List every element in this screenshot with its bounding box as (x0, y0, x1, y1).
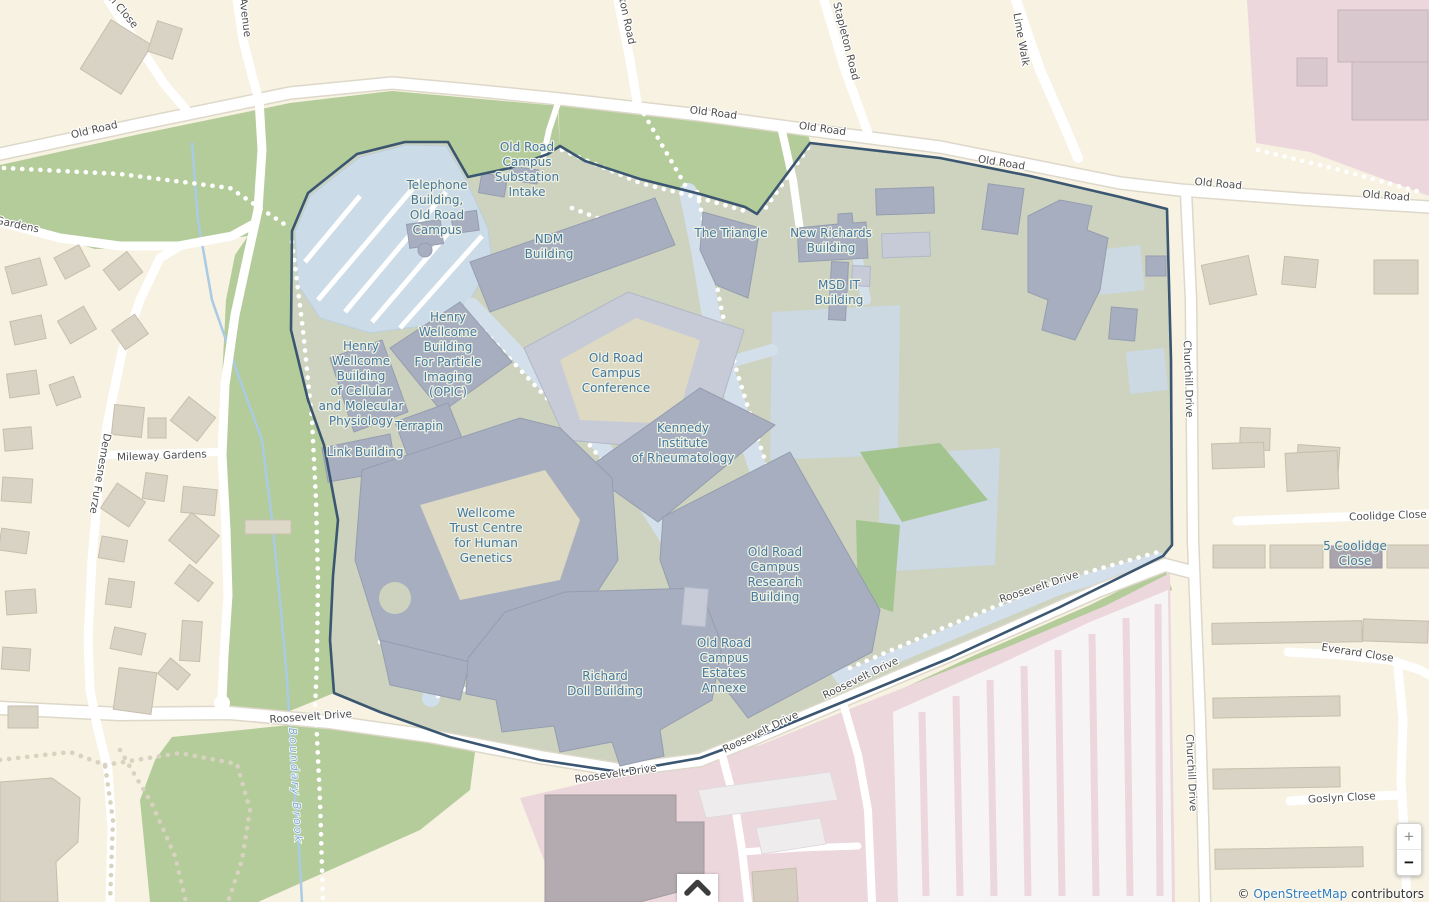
building-estates-annexe (681, 587, 708, 627)
copyright-text: © (1238, 887, 1254, 901)
chevron-up-icon (677, 874, 718, 902)
brook-bridge (245, 520, 291, 534)
zoom-in-button[interactable]: + (1397, 824, 1421, 850)
openstreetmap-link[interactable]: OpenStreetMap (1253, 887, 1347, 901)
map-canvas[interactable]: Old RoadOld RoadOld RoadOld RoadOld Road… (0, 0, 1429, 902)
building-5-coolidge-close (1330, 546, 1382, 568)
building-msd-it (828, 262, 848, 321)
map-viewport[interactable]: Old RoadOld RoadOld RoadOld RoadOld Road… (0, 0, 1429, 902)
attribution: © OpenStreetMap contributors (1238, 887, 1424, 901)
building-substation-1 (478, 173, 507, 197)
zoom-out-button[interactable]: − (1397, 850, 1421, 875)
building-telephone-2 (451, 210, 480, 233)
zoom-control: + − (1396, 823, 1422, 876)
contributors-text: contributors (1347, 887, 1424, 901)
expand-button[interactable] (677, 874, 718, 902)
